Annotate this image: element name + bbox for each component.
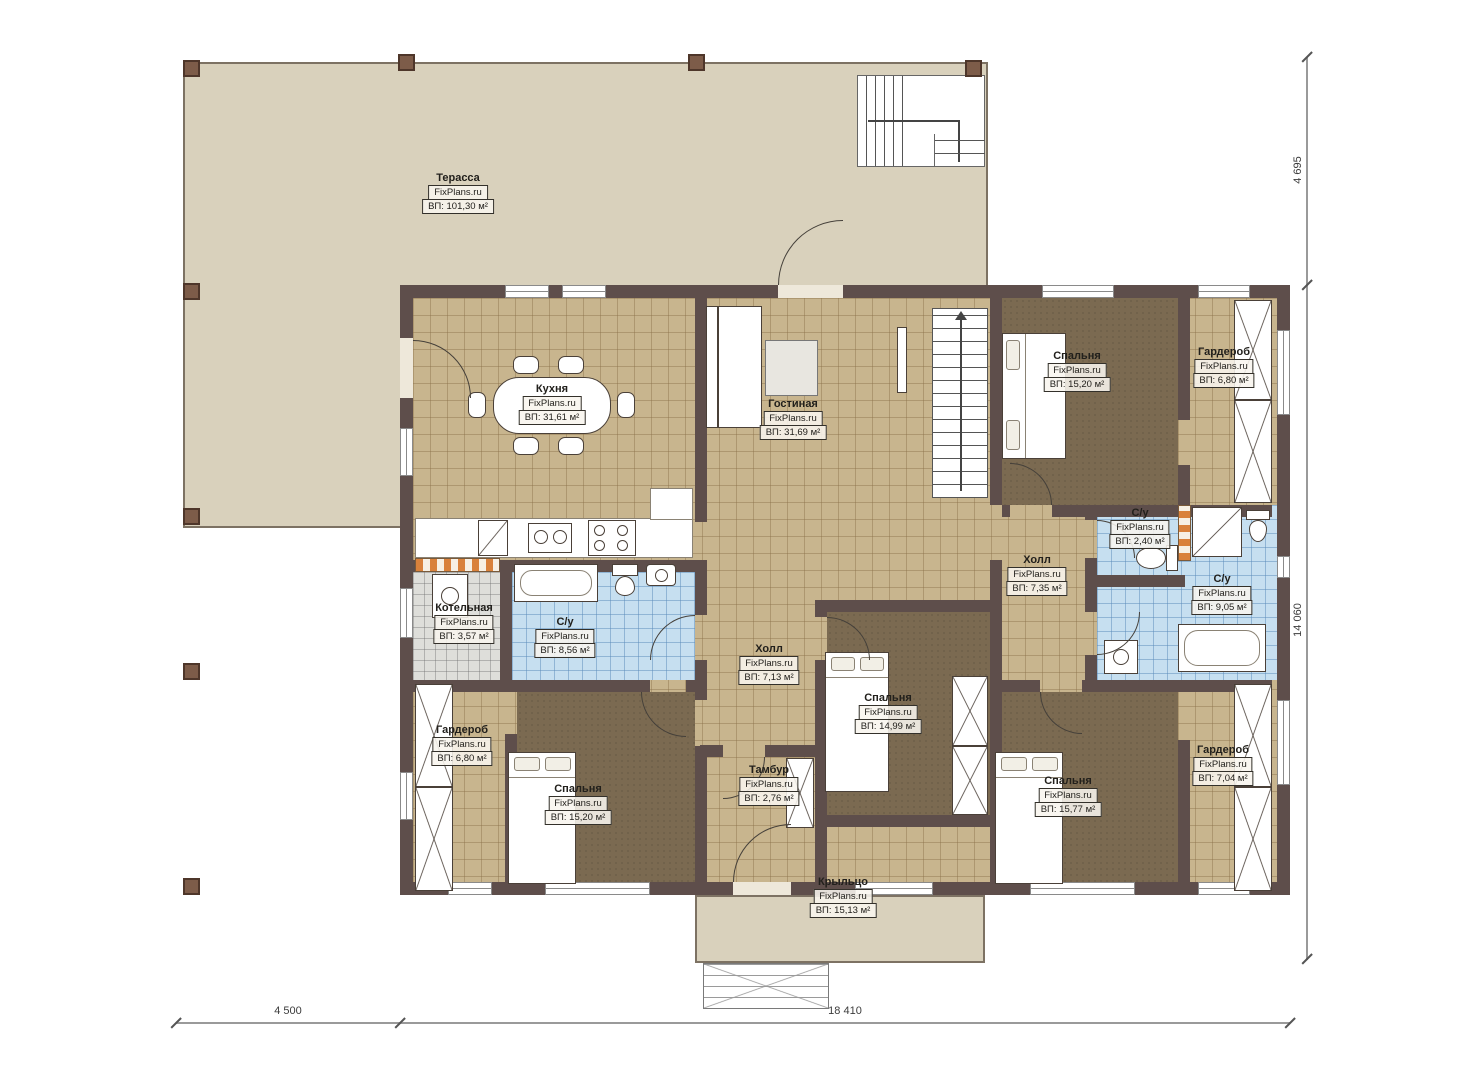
tiled-apron (415, 558, 500, 572)
room-label-kitchen: Кухня FixPlans.ru ВП: 31,61 м² (519, 383, 586, 425)
bed (995, 752, 1063, 884)
room-name: Котельная (435, 602, 493, 614)
wardrobe-unit (952, 746, 988, 815)
room-area: ВП: 15,13 м² (810, 903, 877, 918)
room-name: Холл (1023, 554, 1051, 566)
room-area: ВП: 101,30 м² (422, 199, 494, 214)
bathtub (514, 564, 598, 602)
wardrobe-unit (952, 676, 988, 746)
kitchen-sink (528, 523, 572, 553)
wardrobe-unit (415, 787, 453, 891)
interior-wall (765, 745, 815, 757)
room-label-bedroom-center: Спальня FixPlans.ru ВП: 14,99 м² (855, 692, 922, 734)
bathtub (1178, 624, 1266, 672)
stove (588, 520, 636, 556)
window (400, 428, 413, 476)
room-area: ВП: 6,80 м² (1193, 373, 1254, 388)
room-area: ВП: 15,20 м² (545, 810, 612, 825)
room-label-terrace: Терасса FixPlans.ru ВП: 101,30 м² (422, 172, 494, 214)
room-name: Спальня (864, 692, 912, 704)
room-name: Спальня (554, 783, 602, 795)
room-name: Спальня (1044, 775, 1092, 787)
tv (897, 327, 907, 393)
terrace-post (183, 508, 200, 525)
floor-plan: Терасса FixPlans.ru ВП: 101,30 м² Кухня … (0, 0, 1473, 1080)
interior-wall (1178, 298, 1190, 420)
window (400, 588, 413, 638)
room-label-wc-small: С/у FixPlans.ru ВП: 2,40 м² (1109, 507, 1170, 549)
dimension-value-house-height: 14 060 (1292, 603, 1304, 637)
tiled-apron (1178, 505, 1191, 561)
door-opening (733, 882, 791, 895)
toilet (612, 564, 638, 576)
terrace-post (183, 283, 200, 300)
room-area: ВП: 7,04 м² (1192, 771, 1253, 786)
toilet (1246, 510, 1270, 520)
interior-wall (1085, 505, 1097, 520)
dimension-value-terrace-width: 4 500 (274, 1005, 302, 1017)
interior-wall (1085, 655, 1097, 680)
room-label-wardrobe-bottom-right: Гардероб FixPlans.ru ВП: 7,04 м² (1192, 744, 1253, 786)
room-label-hall-center: Холл FixPlans.ru ВП: 7,13 м² (738, 643, 799, 685)
room-area: ВП: 7,13 м² (738, 670, 799, 685)
room-area: ВП: 31,69 м² (760, 425, 827, 440)
terrace-post (398, 54, 415, 71)
room-name: Гардероб (1198, 346, 1250, 358)
room-name: Кухня (536, 383, 568, 395)
chair (558, 356, 584, 374)
room-label-wc-middle: С/у FixPlans.ru ВП: 8,56 м² (534, 616, 595, 658)
room-label-hall-right: Холл FixPlans.ru ВП: 7,35 м² (1006, 554, 1067, 596)
kitchen-counter (650, 488, 693, 520)
room-name: Терасса (436, 172, 480, 184)
window (1277, 700, 1290, 785)
room-label-tambour: Тамбур FixPlans.ru ВП: 2,76 м² (738, 764, 799, 806)
terrace-post (183, 663, 200, 680)
room-label-bedroom-top-right: Спальня FixPlans.ru ВП: 15,20 м² (1044, 350, 1111, 392)
interior-wall (700, 745, 723, 757)
kitchen-cabinet (478, 520, 508, 556)
sofa (706, 306, 762, 428)
toilet (1166, 545, 1178, 571)
interior-wall (815, 600, 827, 617)
room-name: Гардероб (1197, 744, 1249, 756)
room-area: ВП: 2,76 м² (738, 791, 799, 806)
room-area: ВП: 15,77 м² (1035, 802, 1102, 817)
room-label-wardrobe-top-right: Гардероб FixPlans.ru ВП: 6,80 м² (1193, 346, 1254, 388)
interior-wall (1097, 575, 1185, 587)
chair (513, 437, 539, 455)
interior-wall (695, 660, 707, 700)
room-area: ВП: 14,99 м² (855, 719, 922, 734)
shower (1192, 507, 1242, 557)
terrace-post (688, 54, 705, 71)
toilet (1136, 547, 1166, 569)
stair-treads (934, 134, 985, 166)
room-label-living: Гостиная FixPlans.ru ВП: 31,69 м² (760, 398, 827, 440)
room-name: Спальня (1053, 350, 1101, 362)
room-label-porch: Крыльцо FixPlans.ru ВП: 15,13 м² (810, 876, 877, 918)
interior-wall (1178, 740, 1190, 895)
room-label-boiler: Котельная FixPlans.ru ВП: 3,57 м² (433, 602, 494, 644)
room-name: С/у (1131, 507, 1148, 519)
window (1277, 330, 1290, 415)
interior-wall (1002, 505, 1010, 517)
chair (513, 356, 539, 374)
toilet (615, 576, 635, 596)
door-opening (400, 338, 413, 398)
window (400, 772, 413, 820)
stair-arrow (868, 120, 960, 122)
room-label-bedroom-bottom-left: Спальня FixPlans.ru ВП: 15,20 м² (545, 783, 612, 825)
chair (558, 437, 584, 455)
interior-wall (815, 815, 990, 827)
interior-wall (990, 298, 1002, 505)
room-area: ВП: 2,40 м² (1109, 534, 1170, 549)
room-area: ВП: 8,56 м² (534, 643, 595, 658)
room-label-wc-right: С/у FixPlans.ru ВП: 9,05 м² (1191, 573, 1252, 615)
dimension-line-bottom (176, 1022, 1290, 1024)
room-name: Крыльцо (818, 876, 868, 888)
dimension-line-right (1306, 57, 1308, 960)
interior-wall (827, 600, 990, 612)
room-name: С/у (1213, 573, 1230, 585)
room-label-bedroom-bottom-right: Спальня FixPlans.ru ВП: 15,77 м² (1035, 775, 1102, 817)
room-area: ВП: 7,35 м² (1006, 581, 1067, 596)
room-name: Тамбур (749, 764, 789, 776)
coffee-table (765, 340, 818, 396)
window (1277, 556, 1290, 578)
terrace-stairs (857, 75, 985, 167)
room-name: Холл (755, 643, 783, 655)
interior-wall (695, 746, 707, 895)
dimension-value-house-width: 18 410 (828, 1005, 862, 1017)
room-area: ВП: 9,05 м² (1191, 600, 1252, 615)
wardrobe-unit (1234, 400, 1272, 503)
interior-wall (1085, 558, 1097, 612)
window (505, 285, 549, 298)
window (562, 285, 606, 298)
interior-wall (1002, 680, 1040, 692)
terrace-post (183, 60, 200, 77)
room-area: ВП: 3,57 м² (433, 629, 494, 644)
room-area: ВП: 15,20 м² (1044, 377, 1111, 392)
terrace-post (183, 878, 200, 895)
room-label-wardrobe-bottom-left: Гардероб FixPlans.ru ВП: 6,80 м² (431, 724, 492, 766)
porch-steps (703, 963, 829, 1009)
sink (646, 564, 676, 586)
room-name: С/у (556, 616, 573, 628)
terrace-post (965, 60, 982, 77)
room-name: Гардероб (436, 724, 488, 736)
window (1042, 285, 1114, 298)
door-opening (778, 285, 843, 298)
chair (617, 392, 635, 418)
window (1198, 285, 1250, 298)
room-name: Гостиная (768, 398, 818, 410)
window (448, 882, 492, 895)
room-area: ВП: 6,80 м² (431, 751, 492, 766)
interior-wall (695, 560, 707, 615)
dimension-value-terrace-height: 4 695 (1292, 156, 1304, 184)
interior-wall (500, 572, 512, 680)
room-area: ВП: 31,61 м² (519, 410, 586, 425)
staircase (932, 308, 988, 498)
wardrobe-unit (1234, 787, 1272, 891)
